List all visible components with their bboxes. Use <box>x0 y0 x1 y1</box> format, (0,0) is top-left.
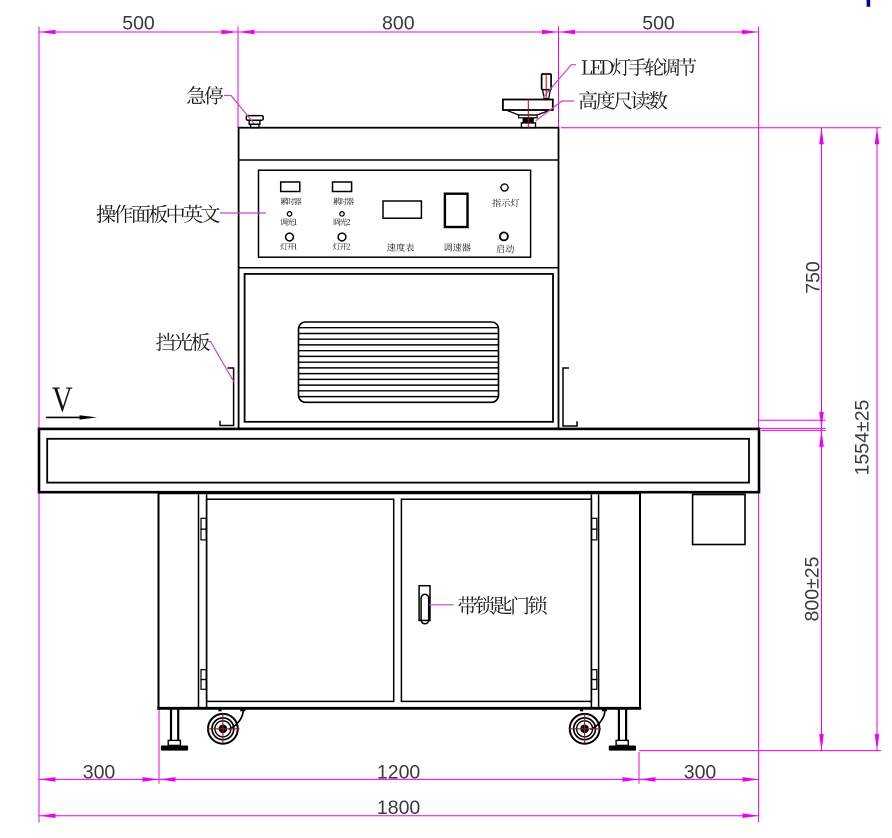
svg-text:750: 750 <box>802 261 824 294</box>
svg-text:500: 500 <box>122 13 155 35</box>
svg-text:V: V <box>52 380 73 420</box>
svg-text:800±25: 800±25 <box>801 556 823 621</box>
svg-text:1800: 1800 <box>377 797 421 819</box>
svg-text:800: 800 <box>382 13 415 35</box>
svg-text:500: 500 <box>642 13 675 35</box>
svg-text:300: 300 <box>83 761 116 783</box>
svg-text:300: 300 <box>684 761 717 783</box>
svg-text:1200: 1200 <box>377 761 421 783</box>
svg-text:1554±25: 1554±25 <box>852 399 874 475</box>
